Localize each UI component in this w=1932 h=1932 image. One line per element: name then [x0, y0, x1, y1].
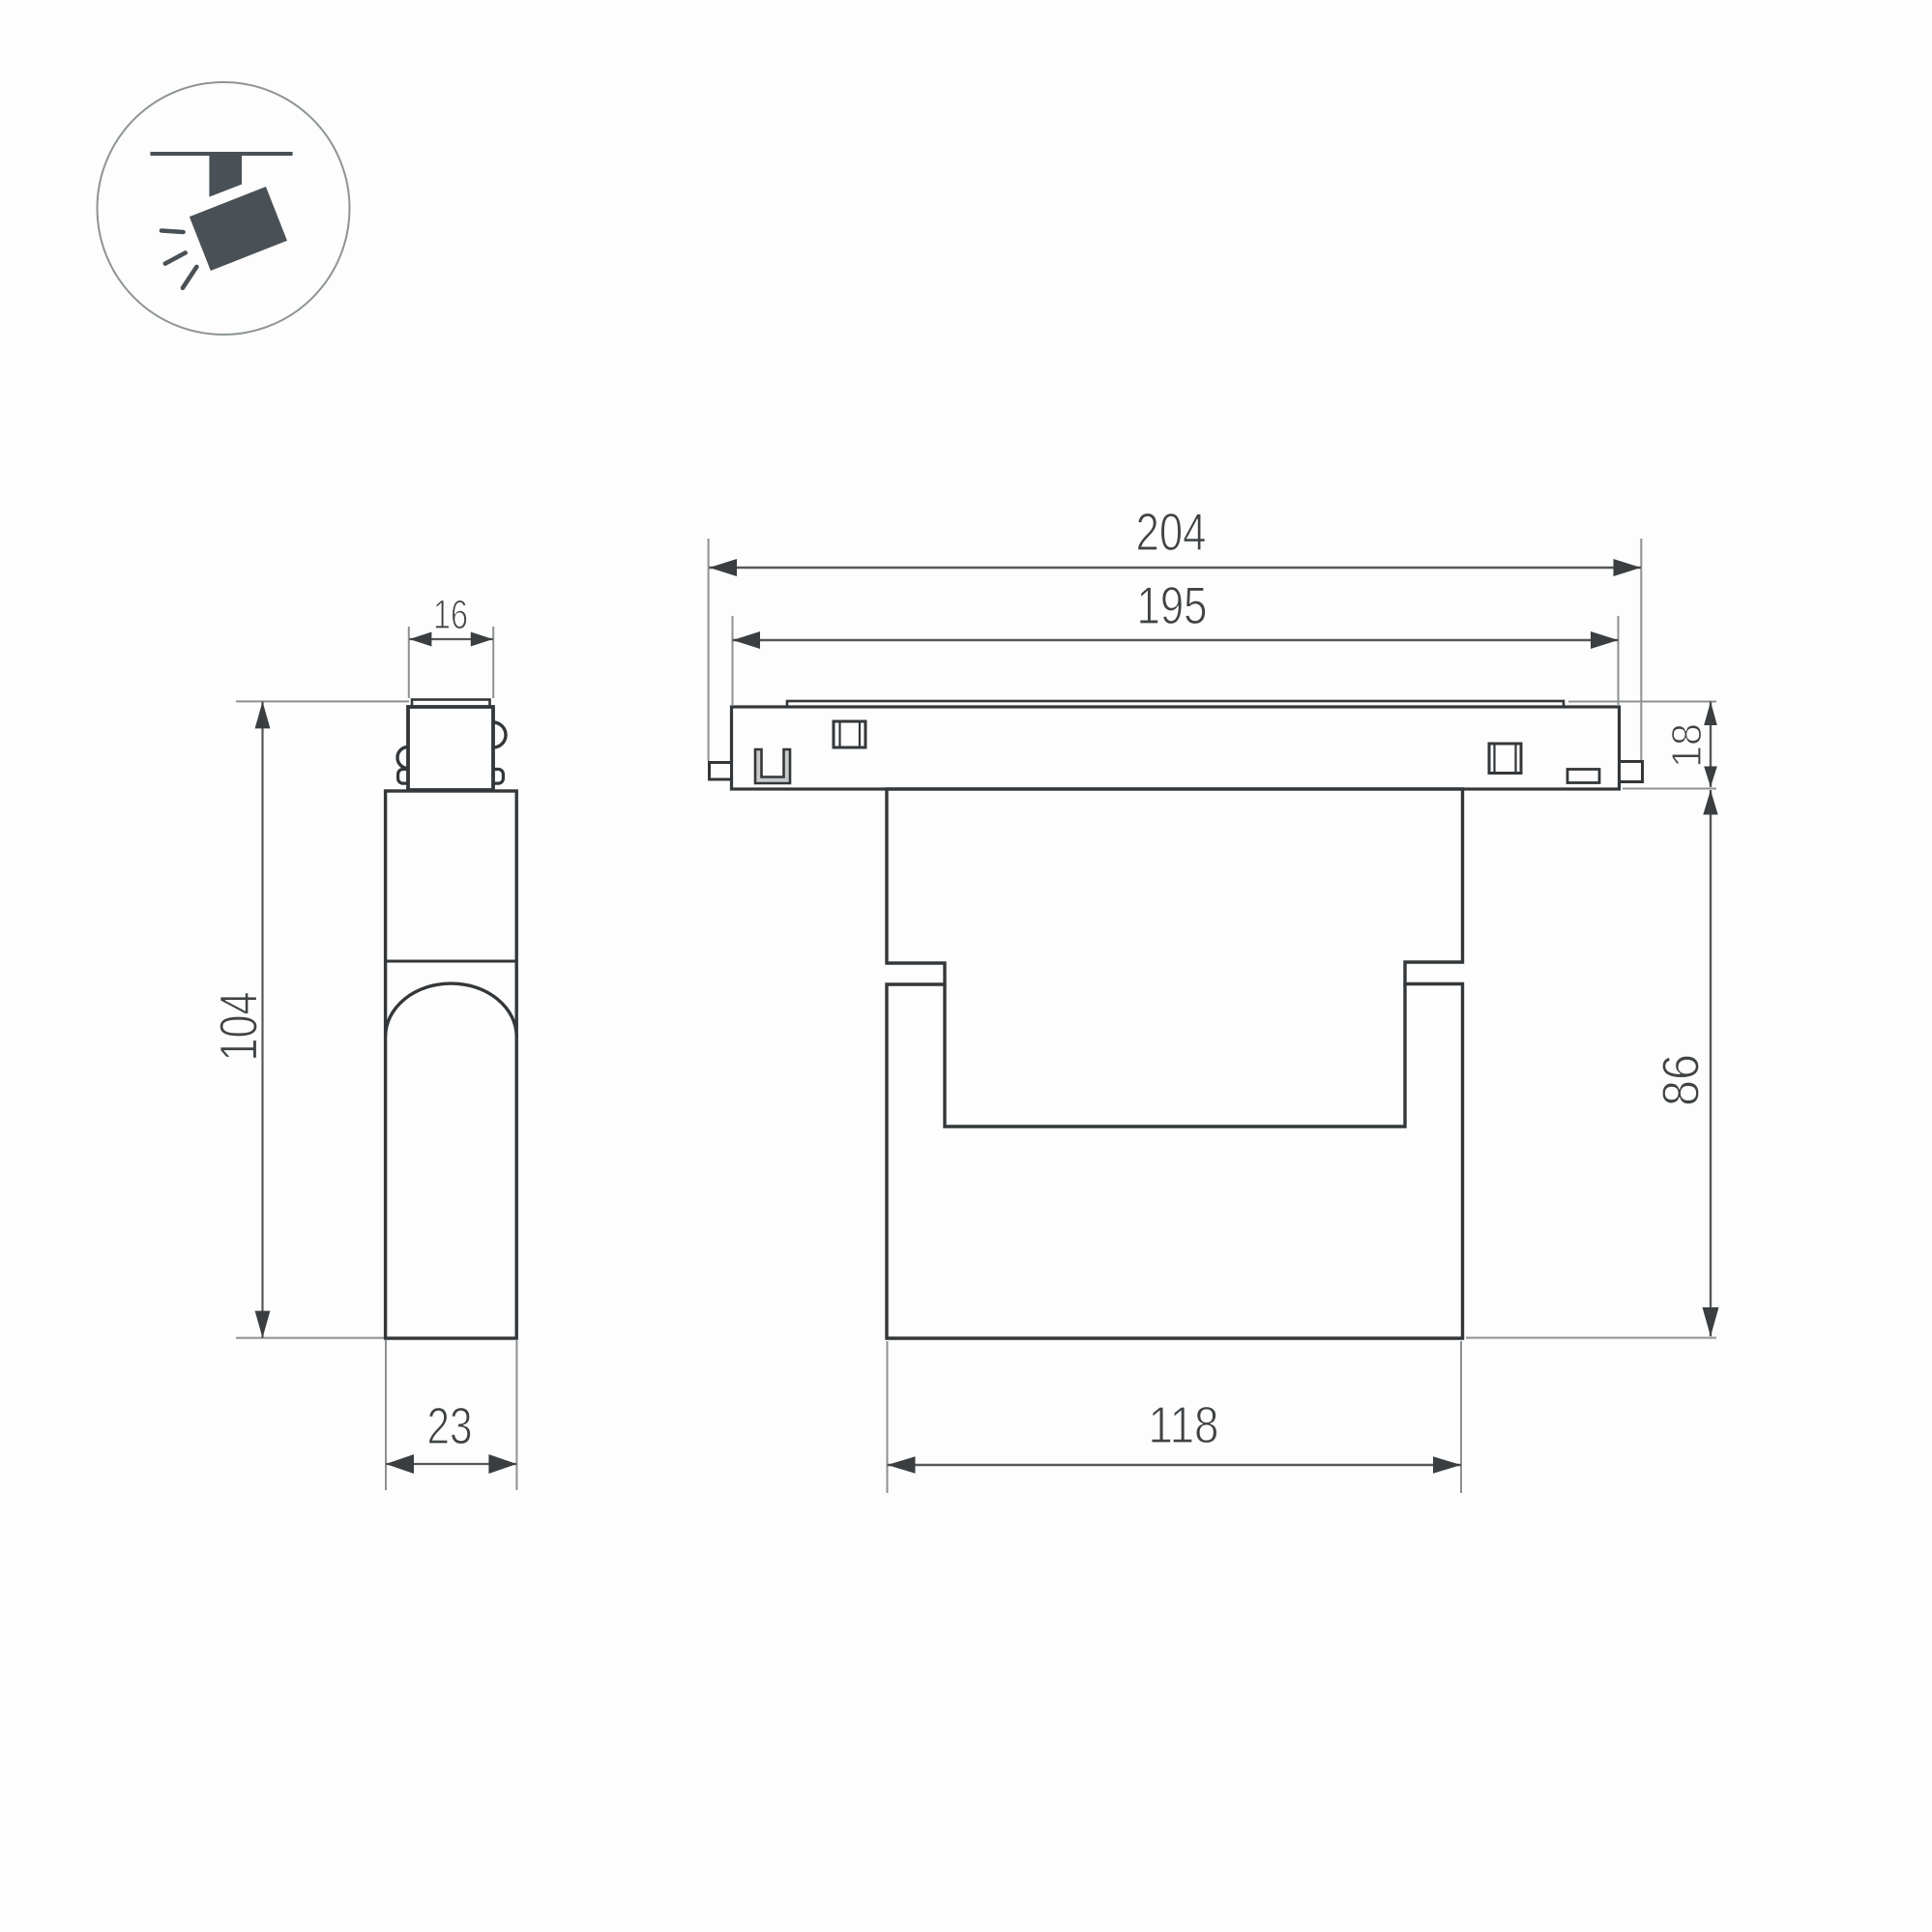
svg-text:23: 23 — [427, 1397, 473, 1455]
svg-text:195: 195 — [1137, 575, 1208, 635]
svg-text:204: 204 — [1136, 502, 1207, 562]
svg-text:18: 18 — [1663, 723, 1711, 768]
svg-text:16: 16 — [433, 592, 468, 638]
svg-text:104: 104 — [209, 992, 269, 1062]
svg-text:118: 118 — [1149, 1396, 1219, 1454]
svg-text:86: 86 — [1653, 1054, 1711, 1106]
